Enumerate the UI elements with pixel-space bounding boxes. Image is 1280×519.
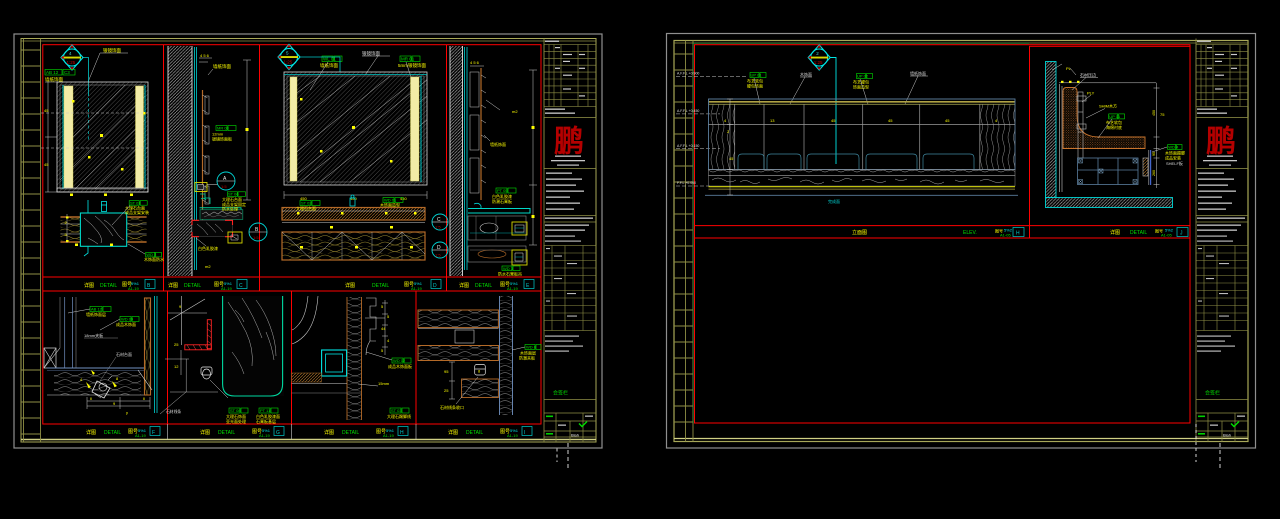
svg-text:G: G: [276, 430, 280, 436]
svg-text:木饰面: 木饰面: [800, 71, 812, 77]
svg-text:m2: m2: [205, 264, 211, 269]
svg-text:A1-19: A1-19: [507, 433, 518, 438]
svg-text:海绵衬底: 海绵衬底: [1106, 124, 1122, 130]
svg-text:墙纸饰面层: 墙纸饰面层: [86, 311, 106, 317]
svg-text:墙纸饰面: 墙纸饰面: [213, 63, 231, 70]
svg-text:1:5: 1:5: [435, 253, 441, 258]
svg-text:详图: 详图: [448, 429, 458, 436]
svg-text:UP 01: UP 01: [1109, 114, 1121, 119]
svg-text:AB 12: AB 12: [46, 70, 59, 75]
svg-text:95: 95: [444, 369, 449, 374]
svg-text:95: 95: [1152, 152, 1156, 156]
svg-text:详图: 详图: [86, 429, 96, 436]
svg-text:详图: 详图: [1110, 229, 1120, 236]
svg-text:AB 12: AB 12: [91, 307, 103, 312]
svg-text:MR 01: MR 01: [401, 57, 415, 62]
svg-text:ST 08: ST 08: [230, 408, 241, 413]
svg-text:45: 45: [831, 118, 836, 123]
svg-text:WD 3: WD 3: [503, 266, 514, 271]
svg-text:DETAIL: DETAIL: [1130, 230, 1147, 236]
svg-text:石材线条: 石材线条: [166, 409, 181, 414]
svg-text:DETAIL: DETAIL: [372, 283, 389, 289]
svg-text:详图: 详图: [459, 282, 469, 289]
svg-text:亚光面处理: 亚光面处理: [226, 418, 246, 424]
svg-text:C3: C3: [64, 70, 70, 75]
svg-text:墙纸饰面: 墙纸饰面: [910, 70, 926, 76]
svg-text:45: 45: [44, 162, 49, 167]
svg-text:SHELF板: SHELF板: [1166, 160, 1183, 166]
svg-text:ST 03: ST 03: [391, 408, 402, 413]
svg-text:墙纸饰面: 墙纸饰面: [320, 62, 338, 69]
svg-text:A1-19: A1-19: [128, 286, 139, 291]
svg-text:75: 75: [1160, 112, 1165, 117]
svg-text:DETAIL: DETAIL: [466, 430, 483, 436]
svg-text:D: D: [437, 245, 441, 251]
svg-text:大理石台面: 大理石台面: [296, 205, 316, 211]
svg-text:A1-19: A1-19: [135, 433, 146, 438]
svg-text:ST 02: ST 02: [301, 201, 312, 206]
svg-text:A1-19: A1-19: [507, 286, 518, 291]
svg-text:1:5: 1:5: [221, 184, 227, 189]
svg-text:防潮石膏板: 防潮石膏板: [492, 198, 512, 204]
svg-text:PLY: PLY: [1087, 91, 1095, 96]
svg-text:PT 05: PT 05: [497, 188, 508, 193]
svg-text:详图: 详图: [84, 282, 94, 289]
svg-text:防水处理: 防水处理: [222, 206, 238, 212]
svg-text:1:25: 1:25: [67, 60, 76, 65]
svg-text:5mm银镜饰面: 5mm银镜饰面: [398, 62, 426, 69]
svg-text:H: H: [1016, 231, 1020, 237]
svg-text:成品安装: 成品安装: [1165, 155, 1181, 161]
svg-text:WD 02: WD 02: [393, 358, 406, 363]
svg-text:I: I: [524, 430, 525, 436]
svg-text:II: II: [90, 396, 92, 401]
svg-text:II: II: [143, 396, 145, 401]
svg-text:15mm: 15mm: [378, 381, 390, 386]
svg-text:详图: 详图: [168, 282, 178, 289]
svg-text:A1-19: A1-19: [259, 433, 270, 438]
svg-text:A1-05: A1-05: [1000, 233, 1011, 238]
svg-text:饰面造型: 饰面造型: [853, 84, 869, 90]
svg-text:H: H: [400, 430, 404, 436]
svg-text:PL: PL: [1066, 66, 1072, 71]
svg-text:WD 6: WD 6: [526, 345, 537, 350]
svg-text:石材线条收口: 石材线条收口: [440, 404, 464, 410]
svg-text:13: 13: [770, 118, 775, 123]
svg-text:A.F.F.L +0.900: A.F.F.L +0.900: [677, 72, 699, 76]
svg-text:WD 09: WD 09: [121, 317, 134, 322]
svg-text:DETAIL: DETAIL: [342, 430, 359, 436]
svg-text:A.F.F.L +0.450: A.F.F.L +0.450: [677, 109, 699, 113]
svg-text:1:5: 1:5: [435, 225, 441, 230]
svg-text:WD 4: WD 4: [1168, 145, 1179, 150]
svg-text:25: 25: [444, 388, 449, 393]
svg-text:18mm夹板: 18mm夹板: [84, 332, 103, 338]
svg-text:石膏板基层: 石膏板基层: [256, 418, 276, 424]
svg-text:25: 25: [174, 342, 179, 347]
svg-text:C: C: [437, 217, 441, 223]
svg-text:成品木饰面: 成品木饰面: [116, 321, 136, 327]
svg-text:1:25: 1:25: [814, 60, 823, 65]
svg-text:ST 06: ST 06: [228, 192, 239, 197]
svg-text:DETAIL: DETAIL: [218, 430, 235, 436]
svg-text:MR 03: MR 03: [217, 126, 230, 131]
svg-text:防潮夹板: 防潮夹板: [519, 355, 535, 361]
svg-text:成品木饰面板: 成品木饰面板: [388, 363, 412, 369]
svg-text:石材台面: 石材台面: [116, 351, 132, 357]
svg-text:白色乳胶漆: 白色乳胶漆: [198, 245, 218, 251]
svg-text:木饰面造型: 木饰面造型: [380, 202, 400, 208]
svg-text:4 5 6: 4 5 6: [200, 53, 210, 58]
svg-text:45: 45: [888, 118, 893, 123]
svg-text:A1-19: A1-19: [411, 286, 422, 291]
svg-text:A.F.F.L +0.150: A.F.F.L +0.150: [677, 144, 699, 148]
svg-text:C: C: [239, 283, 243, 289]
svg-text:PT 11: PT 11: [260, 408, 271, 413]
svg-text:1:25: 1:25: [284, 60, 293, 65]
svg-text:45: 45: [945, 118, 950, 123]
svg-text:成品支架安装: 成品支架安装: [125, 209, 149, 215]
svg-text:DETAIL: DETAIL: [475, 283, 492, 289]
svg-text:45: 45: [44, 108, 49, 113]
svg-text:4 5 6: 4 5 6: [470, 60, 480, 65]
svg-text:12: 12: [174, 364, 179, 369]
svg-text:F: F: [152, 430, 155, 436]
svg-text:UP 01: UP 01: [751, 73, 763, 78]
svg-text:墙纸饰面: 墙纸饰面: [490, 141, 506, 147]
svg-text:木饰面防水: 木饰面防水: [144, 256, 164, 262]
svg-text:详图: 详图: [345, 282, 355, 289]
svg-text:详图: 详图: [324, 429, 334, 436]
svg-text:A1-19: A1-19: [383, 433, 394, 438]
svg-text:银镜饰面板: 银镜饰面板: [212, 136, 232, 142]
svg-text:ELEV.: ELEV.: [963, 230, 977, 236]
svg-text:SHIM木方: SHIM木方: [1099, 103, 1117, 109]
svg-text:防水石膏板吊: 防水石膏板吊: [498, 271, 522, 277]
svg-text:DETAIL: DETAIL: [104, 430, 121, 436]
svg-text:D: D: [433, 283, 437, 289]
svg-text:大理石踢脚线: 大理石踢脚线: [387, 413, 411, 419]
svg-text:F.F.L +0.000: F.F.L +0.000: [677, 181, 696, 185]
svg-text:完成面: 完成面: [828, 198, 840, 204]
svg-text:DETAIL: DETAIL: [184, 283, 201, 289]
svg-text:立面图: 立面图: [852, 229, 867, 236]
svg-text:m2: m2: [512, 109, 518, 114]
svg-text:DETAIL: DETAIL: [100, 283, 117, 289]
svg-text:A1-19: A1-19: [221, 286, 232, 291]
svg-text:详图: 详图: [200, 429, 210, 436]
svg-text:y: y: [126, 410, 128, 415]
svg-text:260: 260: [1152, 170, 1156, 176]
svg-text:1:5: 1:5: [253, 235, 259, 240]
svg-text:A1-05: A1-05: [1161, 233, 1172, 238]
svg-text:450: 450: [400, 196, 407, 201]
svg-text:UP 02: UP 02: [857, 74, 869, 79]
svg-text:石材压边: 石材压边: [1080, 72, 1096, 78]
svg-text:44: 44: [381, 326, 386, 331]
svg-text:450: 450: [1152, 110, 1156, 116]
